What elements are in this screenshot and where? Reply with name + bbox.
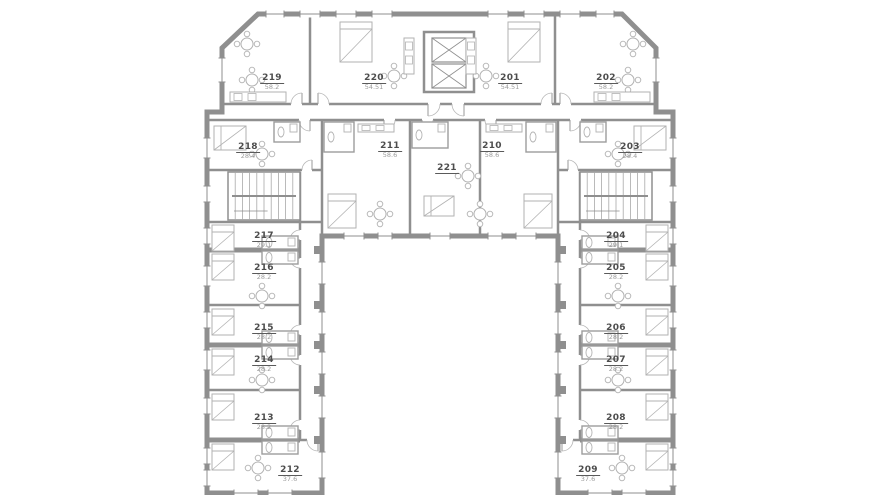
kitchen-appliance-icon	[468, 56, 475, 64]
toilet-icon	[586, 348, 592, 358]
chair-icon	[234, 41, 240, 47]
kitchen-appliance-icon	[376, 126, 384, 131]
bed-icon	[646, 254, 668, 280]
chair-icon	[475, 173, 481, 179]
room-label-210: 21058.6	[480, 134, 504, 160]
sink-icon	[290, 124, 297, 132]
chair-icon	[259, 303, 265, 309]
toilet-icon	[416, 130, 422, 140]
window	[622, 490, 646, 495]
bed-icon	[212, 444, 234, 470]
chair-icon	[615, 303, 621, 309]
table-icon	[616, 462, 628, 474]
chair-icon	[377, 201, 383, 207]
table-icon	[627, 38, 639, 50]
bed-icon	[646, 349, 668, 375]
chair-icon	[487, 211, 493, 217]
chair-icon	[620, 41, 626, 47]
chair-icon	[259, 283, 265, 289]
room-area: 29.1	[604, 242, 628, 249]
room-label-203: 20328.4	[618, 135, 642, 161]
chair-icon	[259, 141, 265, 147]
chair-icon	[249, 67, 255, 73]
kitchen-appliance-icon	[490, 126, 498, 131]
wall-post	[314, 436, 322, 444]
bed-icon	[212, 254, 234, 280]
chair-icon	[377, 221, 383, 227]
table-icon	[462, 170, 474, 182]
floor-plan: 21958.2 22054.51 20154.51 20258.2 21158.…	[0, 0, 880, 495]
window	[588, 490, 612, 495]
chair-icon	[391, 83, 397, 89]
sink-icon	[344, 124, 351, 132]
sink-icon	[438, 124, 445, 132]
chair-icon	[269, 151, 275, 157]
kitchen-appliance-icon	[234, 94, 242, 101]
toilet-icon	[266, 443, 272, 453]
bed-icon	[212, 309, 234, 335]
chair-icon	[625, 67, 631, 73]
room-area: 28.4	[236, 153, 260, 160]
toilet-icon	[530, 132, 536, 142]
room-label-215: 21528.2	[252, 316, 276, 342]
bed-icon	[328, 194, 356, 228]
room-area: 37.6	[278, 476, 302, 483]
wall-post	[558, 301, 566, 309]
chair-icon	[605, 151, 611, 157]
wall-post	[314, 386, 322, 394]
chair-icon	[249, 377, 255, 383]
sink-icon	[288, 348, 295, 356]
chair-icon	[477, 201, 483, 207]
chair-icon	[387, 211, 393, 217]
toilet-icon	[584, 127, 590, 137]
room-label-211: 21158.6	[378, 134, 402, 160]
bed-icon	[646, 394, 668, 420]
bed-icon	[212, 225, 234, 251]
room-area: 54.51	[498, 84, 522, 91]
table-icon	[474, 208, 486, 220]
room-label-212: 21237.6	[278, 458, 302, 484]
room-label-221: 221	[435, 156, 459, 174]
toilet-icon	[586, 238, 592, 248]
kitchen-appliance-icon	[248, 94, 256, 101]
chair-icon	[465, 163, 471, 169]
room-label-205: 20528.2	[604, 256, 628, 282]
sink-icon	[608, 443, 615, 451]
room-label-216: 21628.2	[252, 256, 276, 282]
chair-icon	[259, 161, 265, 167]
chair-icon	[640, 41, 646, 47]
kitchen-appliance-icon	[612, 94, 620, 101]
room-label-209: 20937.6	[576, 458, 600, 484]
toilet-icon	[328, 132, 334, 142]
bed-icon	[646, 309, 668, 335]
sink-icon	[288, 428, 295, 436]
room-area: 28.2	[252, 366, 276, 373]
room-label-207: 20728.2	[604, 348, 628, 374]
chair-icon	[465, 183, 471, 189]
kitchen-appliance-icon	[406, 42, 413, 50]
chair-icon	[483, 83, 489, 89]
bed-icon	[646, 444, 668, 470]
table-icon	[612, 290, 624, 302]
room-area: 29.1	[252, 242, 276, 249]
bed-icon	[508, 22, 540, 62]
wall-post	[558, 341, 566, 349]
wall-post	[314, 341, 322, 349]
kitchen-appliance-icon	[468, 42, 475, 50]
chair-icon	[630, 31, 636, 37]
toilet-icon	[586, 428, 592, 438]
chair-icon	[605, 293, 611, 299]
room-number: 221	[435, 163, 459, 174]
room-area: 28.2	[252, 334, 276, 341]
table-icon	[622, 74, 634, 86]
toilet-icon	[278, 127, 284, 137]
room-area: 28.2	[252, 424, 276, 431]
window	[234, 490, 258, 495]
room-area: 28.2	[604, 424, 628, 431]
wall-post	[314, 301, 322, 309]
chair-icon	[605, 377, 611, 383]
sink-icon	[596, 124, 603, 132]
chair-icon	[609, 465, 615, 471]
room-area: 58.2	[594, 84, 618, 91]
bed-icon	[524, 194, 552, 228]
room-area: 58.2	[260, 84, 284, 91]
wall-post	[314, 246, 322, 254]
chair-icon	[615, 387, 621, 393]
chair-icon	[244, 31, 250, 37]
room-area: 58.6	[378, 152, 402, 159]
chair-icon	[239, 77, 245, 83]
chair-icon	[615, 283, 621, 289]
toilet-icon	[586, 333, 592, 343]
chair-icon	[367, 211, 373, 217]
table-icon	[388, 70, 400, 82]
room-label-213: 21328.2	[252, 406, 276, 432]
chair-icon	[255, 455, 261, 461]
table-icon	[252, 462, 264, 474]
table-icon	[256, 374, 268, 386]
chair-icon	[259, 387, 265, 393]
sink-icon	[546, 124, 553, 132]
sink-icon	[288, 238, 295, 246]
room-label-217: 21729.1	[252, 224, 276, 250]
chair-icon	[483, 63, 489, 69]
table-icon	[241, 38, 253, 50]
chair-icon	[249, 293, 255, 299]
chair-icon	[254, 41, 260, 47]
room-area: 37.6	[576, 476, 600, 483]
chair-icon	[244, 51, 250, 57]
bed-icon	[212, 349, 234, 375]
window	[268, 490, 292, 495]
chair-icon	[269, 377, 275, 383]
wall-posts-layer	[314, 246, 566, 444]
room-label-201: 20154.51	[498, 66, 522, 92]
kitchen-appliance-icon	[362, 126, 370, 131]
table-icon	[480, 70, 492, 82]
toilet-icon	[586, 253, 592, 263]
chair-icon	[615, 161, 621, 167]
chair-icon	[630, 51, 636, 57]
table-icon	[612, 374, 624, 386]
room-label-204: 20429.1	[604, 224, 628, 250]
room-area: 28.2	[604, 334, 628, 341]
chair-icon	[635, 77, 641, 83]
chair-icon	[619, 455, 625, 461]
room-label-214: 21428.2	[252, 348, 276, 374]
table-icon	[246, 74, 258, 86]
wall-post	[558, 386, 566, 394]
floor-plan-svg	[0, 0, 880, 495]
room-label-220: 22054.51	[362, 66, 386, 92]
table-icon	[256, 290, 268, 302]
kitchen-appliance-icon	[598, 94, 606, 101]
room-label-208: 20828.2	[604, 406, 628, 432]
room-area: 28.4	[618, 153, 642, 160]
kitchen-appliance-icon	[406, 56, 413, 64]
sink-icon	[288, 333, 295, 341]
room-label-202: 20258.2	[594, 66, 618, 92]
chair-icon	[245, 465, 251, 471]
room-label-219: 21958.2	[260, 66, 284, 92]
chair-icon	[477, 221, 483, 227]
room-label-218: 21828.4	[236, 135, 260, 161]
wall-post	[558, 436, 566, 444]
chair-icon	[629, 465, 635, 471]
room-label-206: 20628.2	[604, 316, 628, 342]
bed-icon	[646, 225, 668, 251]
room-area: 28.2	[604, 366, 628, 373]
chair-icon	[625, 293, 631, 299]
chair-icon	[255, 475, 261, 481]
room-area: 58.6	[480, 152, 504, 159]
chair-icon	[467, 211, 473, 217]
sink-icon	[288, 443, 295, 451]
toilet-icon	[586, 443, 592, 453]
sink-icon	[288, 253, 295, 261]
wall-post	[558, 246, 566, 254]
room-area: 28.2	[252, 274, 276, 281]
room-area: 54.51	[362, 84, 386, 91]
table-icon	[374, 208, 386, 220]
chair-icon	[619, 475, 625, 481]
chair-icon	[265, 465, 271, 471]
bed-icon	[340, 22, 372, 62]
chair-icon	[391, 63, 397, 69]
chair-icon	[625, 377, 631, 383]
chair-icon	[269, 293, 275, 299]
room-area: 28.2	[604, 274, 628, 281]
bed-icon	[212, 394, 234, 420]
kitchen-appliance-icon	[504, 126, 512, 131]
